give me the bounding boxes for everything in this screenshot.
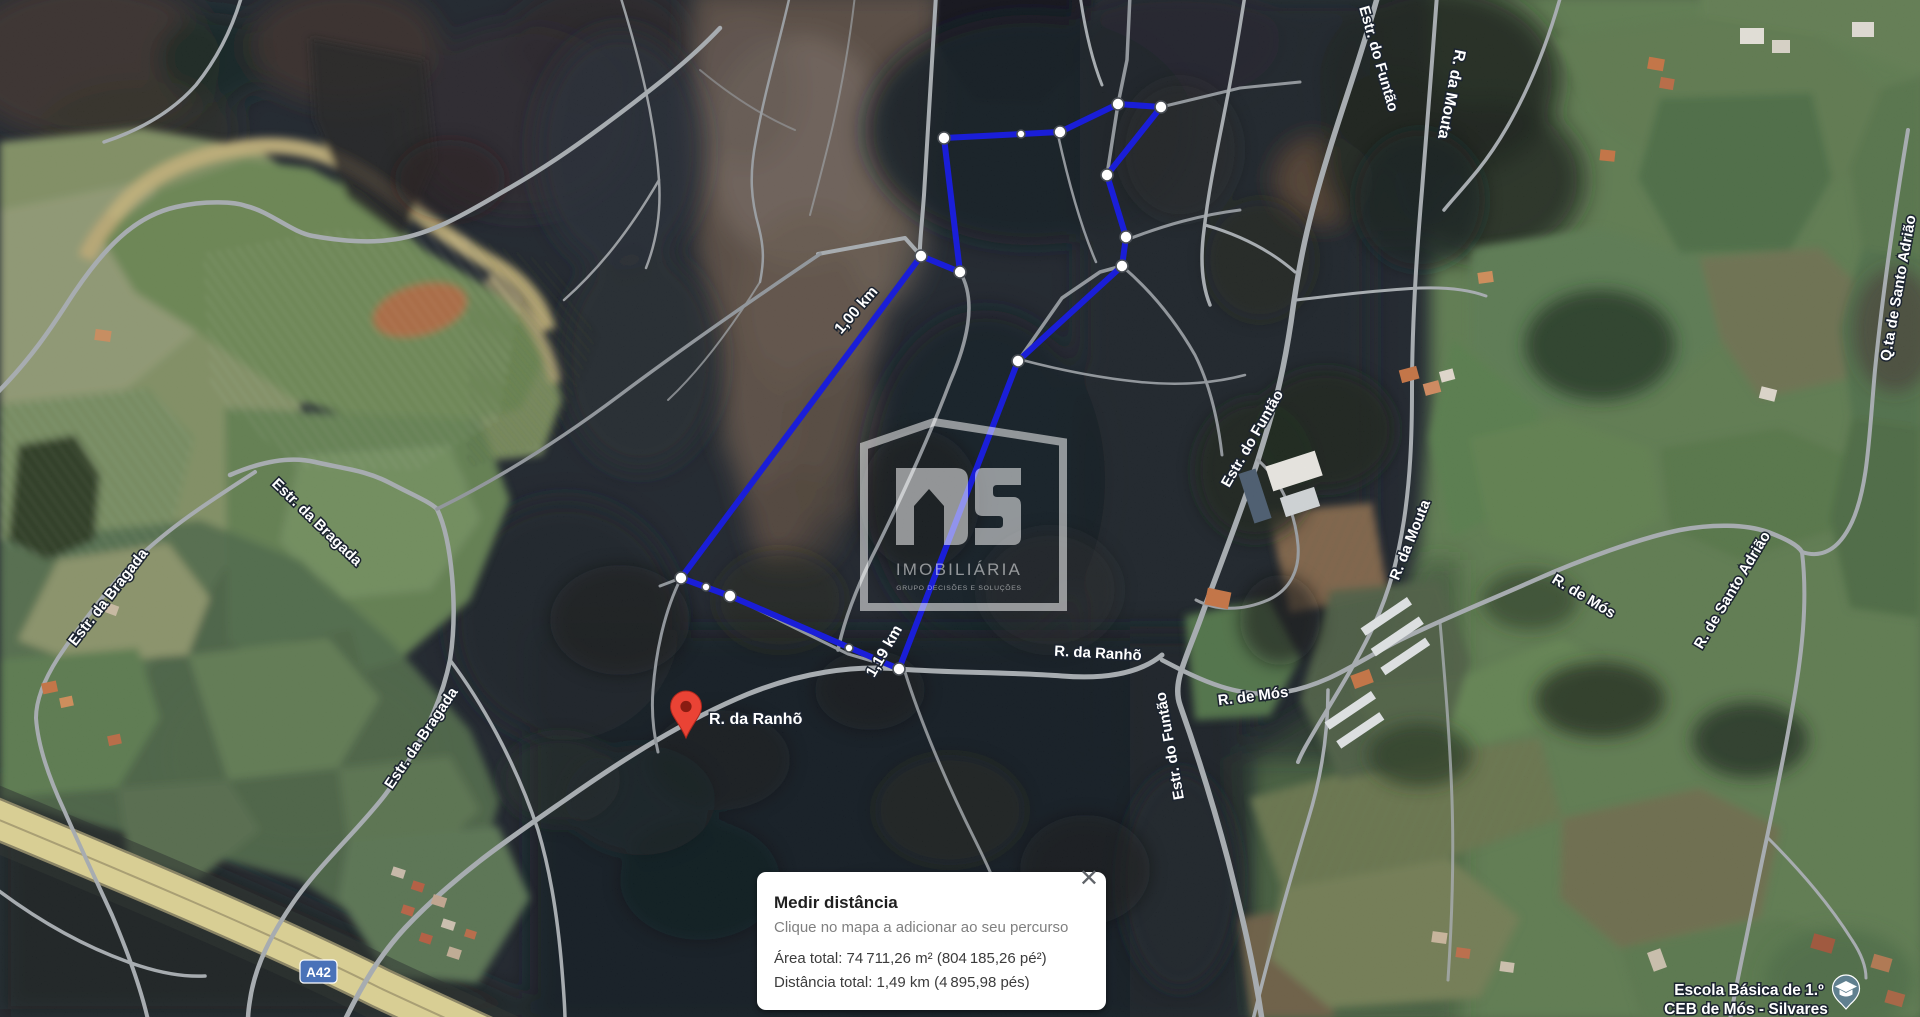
svg-text:R. da Ranhõ: R. da Ranhõ xyxy=(709,711,803,728)
svg-text:Escola Básica de 1.º: Escola Básica de 1.º xyxy=(1674,982,1824,999)
svg-text:A42: A42 xyxy=(306,965,331,980)
svg-text:CEB de Mós - Silvares: CEB de Mós - Silvares xyxy=(1664,1001,1828,1017)
svg-text:GRUPO DECISÕES E SOLUÇÕES: GRUPO DECISÕES E SOLUÇÕES xyxy=(896,583,1022,592)
svg-text:IMOBILIÁRIA: IMOBILIÁRIA xyxy=(896,560,1022,579)
